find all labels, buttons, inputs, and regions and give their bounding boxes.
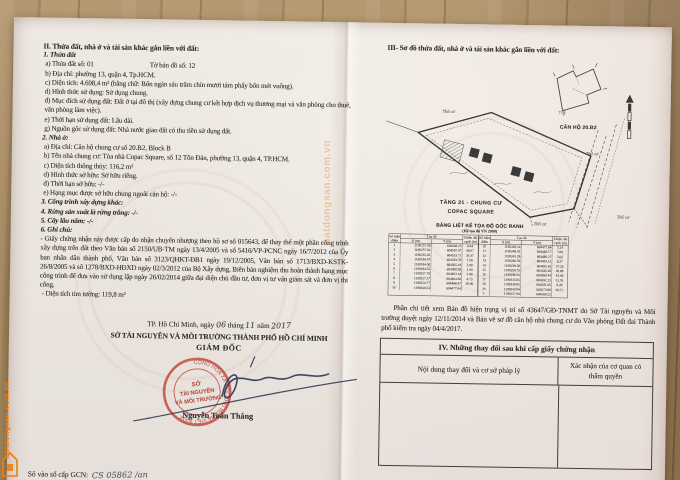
col-point-header: Số hiệu điểm — [479, 235, 491, 244]
section-3-heading: III- Sơ đồ thửa đất, nhà ở và tài sản kh… — [387, 44, 663, 56]
photo-of-land-certificate: II. Thửa đất, nhà ở và tài sản khác gắn … — [0, 0, 680, 480]
notes-paragraph: - Giấy chứng nhận này được cấp do nhận c… — [40, 235, 349, 295]
coord-row: 1 1190257.99 604568.22 — [478, 291, 567, 297]
coord-row: 10 1190249.54 604477.64 — [388, 285, 477, 291]
col-point-header: Số hiệu điểm — [389, 234, 401, 243]
col-length-header: Chiều dài cạnh (m) — [463, 235, 478, 244]
coord-rows-left: 1 1190257.99 604568.22 0.44 2 1190257.62… — [388, 243, 478, 296]
land-label: Thổ cư — [617, 214, 629, 219]
watermark-center: batdongsan.com.vn — [322, 140, 333, 245]
map-reference-note: Phần chi tiết xem Bản đồ hiện trạng vị t… — [381, 304, 655, 338]
coordinate-table-area: BẢNG LIỆT KÊ TỌA ĐỘ GÓC RANH (Hệ tọa độ … — [388, 222, 571, 305]
changes-cell — [379, 383, 559, 468]
coord-rows-right: 10 1190249.54 604477.64 5.24 11 1190246.… — [478, 244, 568, 297]
coord-table-left-half: Số hiệu điểm Tọa độ X (m)Y (m) Chiều dài… — [388, 233, 479, 296]
confirmation-column-header: Xác nhận của cơ quan có thẩm quyền — [558, 358, 652, 386]
coordinate-table: Số hiệu điểm Tọa độ X (m)Y (m) Chiều dài… — [388, 233, 571, 298]
watermark-house-icon — [2, 450, 18, 480]
section-2-column: II. Thửa đất, nhà ở và tài sản khác gắn … — [40, 41, 352, 303]
land-label: Thổ cư — [586, 151, 598, 156]
gcn-book-number: Số vào sổ cấp GCN:CS 05862 /an — [28, 468, 149, 480]
handwritten-year: 2017 — [271, 320, 291, 332]
watermark-left: batdongsan.com.vn — [2, 381, 11, 459]
land-label: Thổ cư — [443, 109, 455, 114]
col-length-header: Chiều dài cạnh (m) — [553, 236, 568, 245]
site-plan-caption: TẦNG 21 - CHUNG CƯ COPAC SQUARE — [409, 198, 533, 217]
handwritten-gcn-number: CS 05862 /an — [92, 469, 148, 480]
spacer — [94, 67, 150, 68]
coord-table-right-half: Số hiệu điểm Tọa độ X (m)Y (m) Chiều dài… — [478, 235, 569, 298]
section-4-box: IV. Những thay đổi sau khi cấp giấy chứn… — [378, 338, 654, 470]
section-4-empty-body — [379, 383, 652, 469]
certificate-inner-page: II. Thửa đất, nhà ở và tài sản khác gắn … — [6, 17, 672, 480]
changes-column-header: Nội dung thay đổi và cơ sở pháp lý — [380, 355, 558, 385]
handwritten-day: 06 — [216, 319, 226, 330]
handwritten-month: 11 — [245, 320, 255, 331]
